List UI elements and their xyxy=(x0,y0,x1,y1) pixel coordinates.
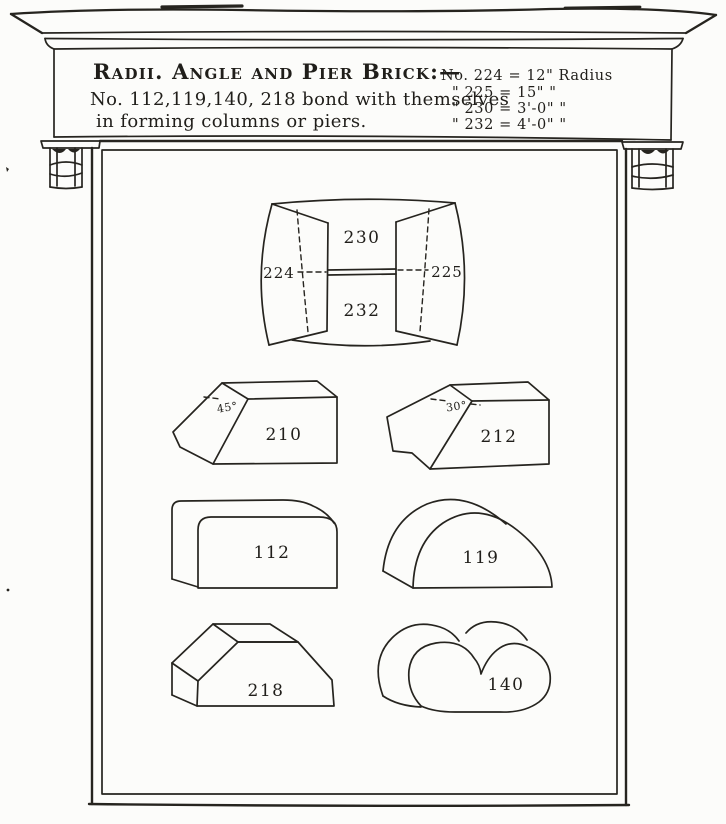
radius-row-232: " 232 = 4'-0" " xyxy=(452,117,567,133)
label-brick-225: 225 xyxy=(431,263,463,281)
label-angle-45: 45° xyxy=(216,399,239,415)
figure-brick-210: 45° 210 xyxy=(173,381,337,464)
cornice xyxy=(11,6,716,49)
label-brick-119: 119 xyxy=(463,548,500,568)
frieze-right-edge xyxy=(671,49,672,140)
label-brick-232: 232 xyxy=(344,301,381,321)
figure-brick-218: 218 xyxy=(172,624,334,706)
radius-row-225: " 225 = 15" " xyxy=(452,85,557,101)
frieze-bottom-edge xyxy=(54,136,671,140)
scanned-catalog-page: Radii. Angle and Pier Brick:— No. 112,11… xyxy=(0,0,726,824)
page-title: Radii. Angle and Pier Brick:— xyxy=(93,59,461,84)
radius-row-224: No. 224 = 12" Radius xyxy=(441,68,613,84)
label-brick-212: 212 xyxy=(481,427,518,447)
scan-specks xyxy=(6,167,9,591)
brick-catalog-drawing: Radii. Angle and Pier Brick:— No. 112,11… xyxy=(0,0,726,824)
figure-brick-112: 112 xyxy=(172,500,337,588)
barrel-bottom-arc xyxy=(292,340,430,346)
header-note-line2: in forming columns or piers. xyxy=(96,111,367,132)
label-brick-140: 140 xyxy=(488,675,525,695)
header-frieze: Radii. Angle and Pier Brick:— No. 112,11… xyxy=(54,49,672,140)
radius-row-230: " 230 = 3'-0" " xyxy=(452,101,567,117)
figure-brick-119: 119 xyxy=(383,500,552,589)
radius-table: No. 224 = 12" Radius " 225 = 15" " " 230… xyxy=(441,68,613,133)
figure-radial-bricks: 230 232 224 225 xyxy=(261,199,464,346)
figure-brick-140: 140 xyxy=(378,622,550,712)
label-brick-210: 210 xyxy=(266,425,303,445)
barrel-top-arc xyxy=(272,199,455,204)
label-brick-112: 112 xyxy=(254,543,291,563)
label-brick-230: 230 xyxy=(344,228,381,248)
label-brick-224: 224 xyxy=(263,264,295,282)
label-brick-218: 218 xyxy=(248,681,285,701)
figure-brick-212: 30° 212 xyxy=(387,382,549,469)
header-note-line1: No. 112,119,140, 218 bond with themselve… xyxy=(90,89,509,110)
right-corbel xyxy=(622,142,683,190)
